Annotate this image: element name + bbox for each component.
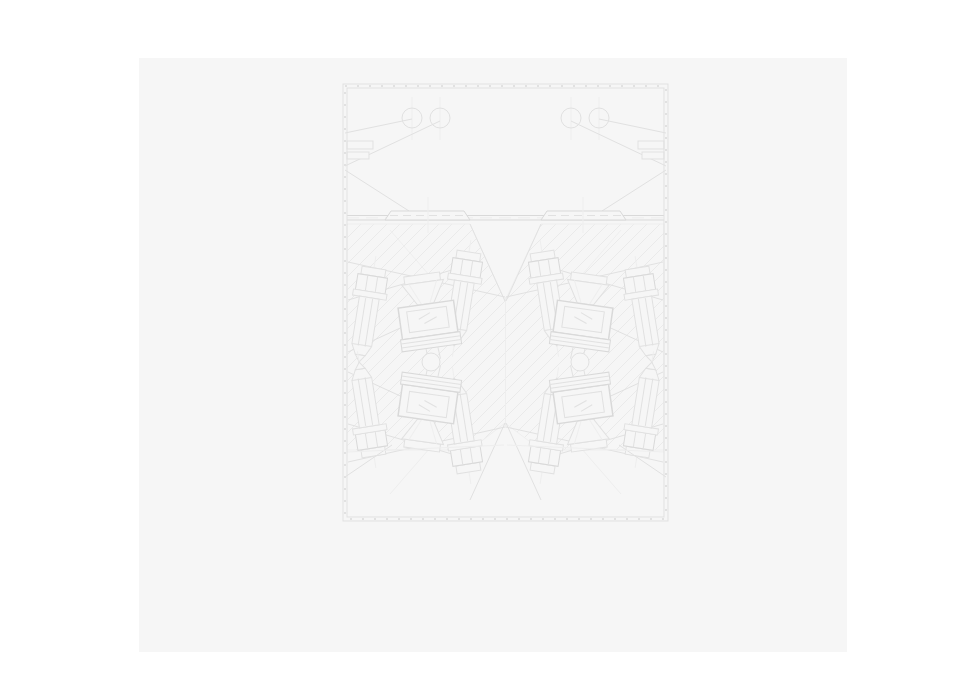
wall-notch	[347, 152, 369, 159]
leader-line	[581, 448, 621, 494]
leader-line	[602, 170, 666, 211]
wall-notch	[638, 141, 664, 149]
technical-drawing	[0, 0, 961, 694]
wall-notch	[642, 152, 664, 159]
pivot-circle	[422, 353, 440, 371]
wall-notch	[347, 141, 373, 149]
leader-line	[390, 448, 430, 494]
leader-line	[345, 170, 409, 211]
leader-line	[599, 119, 666, 133]
page-background: { "page": { "background": "#ffffff", "wi…	[0, 0, 961, 694]
pivot-circle	[571, 353, 589, 371]
leader-line	[345, 119, 412, 133]
